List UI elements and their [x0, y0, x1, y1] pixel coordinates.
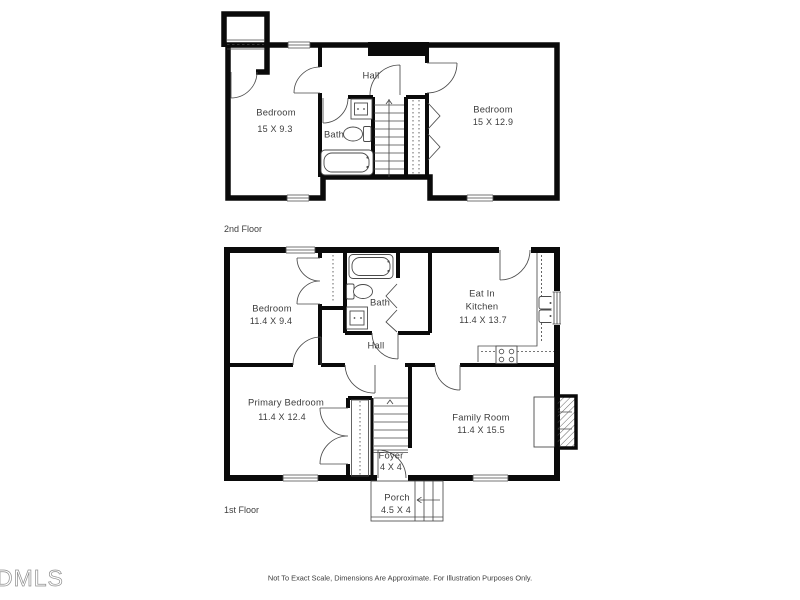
hearth — [534, 397, 556, 447]
primary-closet-double-doors — [320, 408, 348, 464]
room-label-family-room: Family Room — [452, 412, 509, 423]
kitchen-door-opening — [499, 246, 531, 254]
first-floor-plan: Bedroom 11.4 X 9.4 Bath Eat In Kitchen 1… — [224, 246, 576, 521]
toilet-tank-icon — [347, 284, 355, 299]
tub-faucet-dot — [366, 156, 368, 158]
bath-fixtures-1f — [347, 255, 394, 330]
floor-label-2f: 2nd Floor — [224, 224, 262, 234]
firebox — [556, 396, 576, 448]
room-dims-porch: 4.5 X 4 — [381, 505, 411, 515]
room-label-bedroom-right-2f: Bedroom — [473, 104, 512, 115]
room-label-bath-2f: Bath — [324, 129, 344, 140]
tub-inner-icon — [324, 153, 369, 172]
family-room-door-swing — [435, 365, 460, 390]
faucet-dot — [550, 302, 552, 304]
porch-steps — [415, 481, 433, 521]
tub-faucet-dot — [366, 166, 368, 168]
stair-up-arrow-icon — [387, 400, 393, 404]
room-dims-family-room: 11.4 X 15.5 — [457, 425, 505, 435]
toilet-tank-icon — [364, 127, 372, 142]
sink-faucet-dot — [363, 108, 365, 110]
sink-faucet-dot — [357, 108, 359, 110]
room-label-hall-1f: Hall — [368, 340, 385, 351]
bath-door-swing-2f — [323, 98, 348, 123]
sink-faucet-dot — [354, 317, 356, 319]
floor-label-1f: 1st Floor — [224, 505, 259, 515]
second-floor-plan: Bedroom 15 X 9.3 Bedroom 15 X 12.9 Hall … — [224, 14, 557, 234]
disclaimer-text: Not To Exact Scale, Dimensions Are Appro… — [268, 574, 532, 583]
room-label-primary-bedroom: Primary Bedroom — [248, 397, 324, 408]
stair-treads-1f — [373, 398, 408, 453]
room-label-kitchen-line2: Kitchen — [466, 301, 499, 312]
bedroom-closet-double-doors — [297, 258, 320, 304]
room-dims-bedroom-1f: 11.4 X 9.4 — [250, 316, 292, 326]
room-dims-kitchen: 11.4 X 13.7 — [459, 315, 507, 325]
room-dims-primary-bedroom: 11.4 X 12.4 — [258, 412, 306, 422]
right-bedroom-door-swing — [427, 63, 457, 93]
tub-faucet-dot — [387, 260, 389, 262]
sink-faucet-dot — [360, 317, 362, 319]
fireplace — [534, 396, 576, 448]
tub-faucet-dot — [387, 270, 389, 272]
room-label-kitchen-line1: Eat In — [469, 288, 495, 299]
sink-basin-icon — [355, 103, 368, 115]
faucet-dot — [550, 315, 552, 317]
room-label-hall-2f: Hall — [363, 70, 380, 81]
bifold-doors-bath-1f — [386, 284, 397, 332]
floor-plan-drawing: Bedroom 15 X 9.3 Bedroom 15 X 12.9 Hall … — [0, 0, 800, 600]
room-label-bath-1f: Bath — [370, 297, 390, 308]
bedroom-door-swing-1f — [293, 337, 321, 365]
toilet-bowl-icon — [344, 127, 363, 141]
left-bedroom-door-swing — [294, 67, 320, 93]
room-dims-bedroom-left-2f: 15 X 9.3 — [257, 124, 292, 134]
room-label-foyer: Foyer — [379, 450, 404, 461]
mls-watermark-logo: DMLS — [0, 565, 64, 591]
kitchen-back-door-swing — [500, 250, 530, 280]
closet-shelf-dotted-2f — [413, 100, 419, 175]
window-frame — [553, 292, 562, 324]
bifold-doors-2f — [428, 103, 440, 160]
interior-walls-1f — [227, 250, 557, 478]
room-dims-foyer: 4 X 4 — [380, 462, 402, 472]
room-label-bedroom-1f: Bedroom — [252, 303, 291, 314]
porch-arrow-icon — [417, 497, 440, 503]
floor-plan-page: Bedroom 15 X 9.3 Bedroom 15 X 12.9 Hall … — [0, 0, 800, 600]
room-label-bedroom-left-2f: Bedroom — [256, 107, 295, 118]
closet-bump-door-swing — [231, 72, 257, 98]
tub-inner-icon — [352, 258, 390, 276]
primary-bedroom-door-swing — [345, 365, 375, 393]
room-dims-bedroom-right-2f: 15 X 12.9 — [473, 117, 513, 127]
room-label-porch: Porch — [384, 492, 410, 503]
